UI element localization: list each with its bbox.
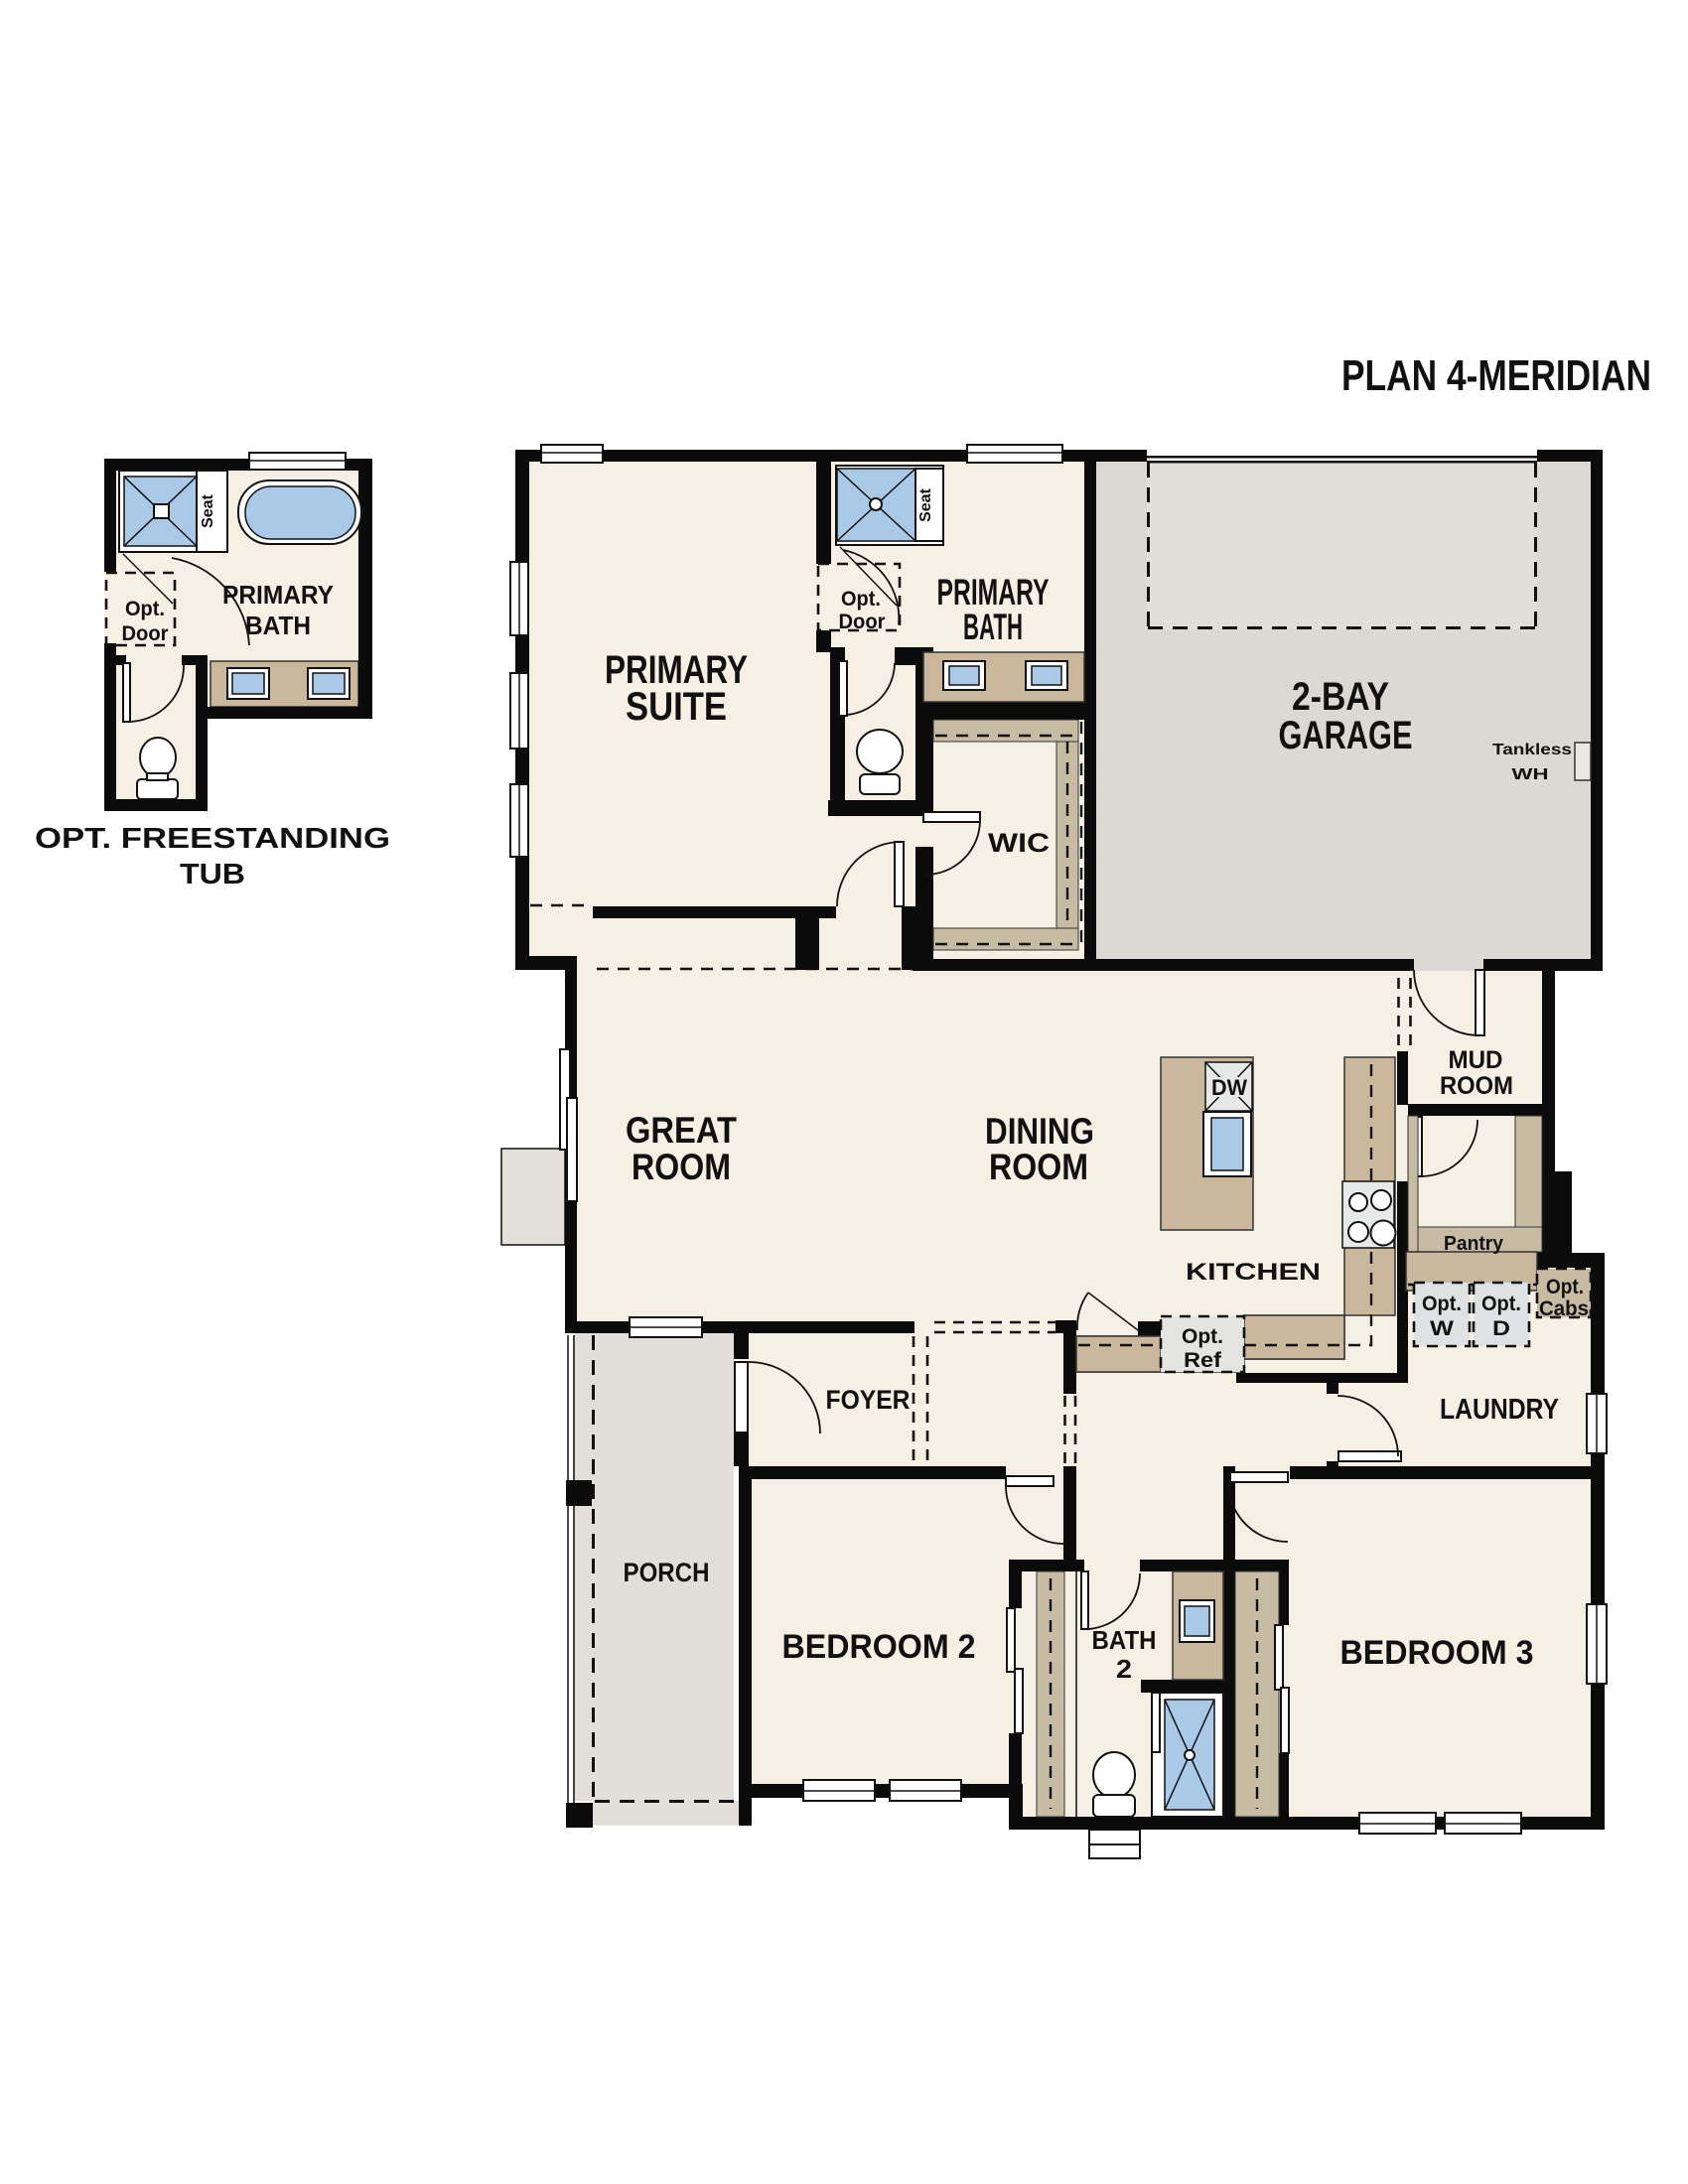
svg-text:DW: DW bbox=[1211, 1075, 1247, 1100]
svg-text:WH: WH bbox=[1512, 766, 1549, 783]
svg-text:Pantry: Pantry bbox=[1444, 1233, 1504, 1255]
svg-text:2-BAY: 2-BAY bbox=[1292, 675, 1389, 719]
svg-text:GREAT: GREAT bbox=[626, 1110, 737, 1151]
svg-text:2: 2 bbox=[1116, 1654, 1132, 1684]
svg-text:BATH: BATH bbox=[1092, 1625, 1157, 1655]
svg-text:GARAGE: GARAGE bbox=[1279, 714, 1413, 757]
svg-text:ROOM: ROOM bbox=[1440, 1072, 1513, 1100]
svg-text:Opt.: Opt. bbox=[841, 588, 881, 611]
svg-text:OPT. FREESTANDING: OPT. FREESTANDING bbox=[35, 823, 390, 855]
svg-text:Seat: Seat bbox=[200, 493, 216, 527]
svg-text:PRIMARY: PRIMARY bbox=[222, 580, 334, 610]
svg-text:SUITE: SUITE bbox=[626, 685, 727, 729]
svg-text:LAUNDRY: LAUNDRY bbox=[1440, 1394, 1559, 1426]
svg-text:BATH: BATH bbox=[245, 611, 311, 640]
svg-text:TUB: TUB bbox=[180, 859, 245, 890]
svg-text:PORCH: PORCH bbox=[624, 1558, 710, 1587]
svg-text:BEDROOM 2: BEDROOM 2 bbox=[782, 1628, 976, 1666]
svg-text:Cabs: Cabs bbox=[1539, 1297, 1589, 1320]
svg-text:DINING: DINING bbox=[985, 1111, 1094, 1152]
svg-text:PLAN 4-MERIDIAN: PLAN 4-MERIDIAN bbox=[1341, 351, 1651, 400]
svg-text:D: D bbox=[1492, 1317, 1510, 1340]
svg-text:Seat: Seat bbox=[917, 487, 934, 521]
svg-text:Opt.: Opt. bbox=[1422, 1293, 1462, 1315]
svg-text:Door: Door bbox=[839, 611, 886, 633]
svg-text:Tankless: Tankless bbox=[1492, 742, 1572, 758]
svg-text:Opt.: Opt. bbox=[1182, 1325, 1223, 1348]
svg-text:Opt.: Opt. bbox=[125, 598, 165, 620]
svg-text:FOYER: FOYER bbox=[826, 1385, 911, 1415]
svg-text:Opt.: Opt. bbox=[1546, 1276, 1584, 1298]
svg-text:Opt.: Opt. bbox=[1481, 1293, 1521, 1315]
svg-text:BEDROOM 3: BEDROOM 3 bbox=[1340, 1634, 1534, 1672]
svg-text:MUD: MUD bbox=[1449, 1046, 1503, 1074]
svg-text:W: W bbox=[1430, 1317, 1454, 1340]
svg-text:ROOM: ROOM bbox=[632, 1147, 731, 1187]
svg-text:Ref: Ref bbox=[1184, 1349, 1222, 1372]
svg-text:ROOM: ROOM bbox=[989, 1147, 1088, 1187]
svg-text:Door: Door bbox=[122, 622, 169, 645]
svg-text:BATH: BATH bbox=[963, 607, 1023, 647]
svg-text:WIC: WIC bbox=[988, 828, 1050, 858]
svg-text:KITCHEN: KITCHEN bbox=[1186, 1259, 1321, 1286]
